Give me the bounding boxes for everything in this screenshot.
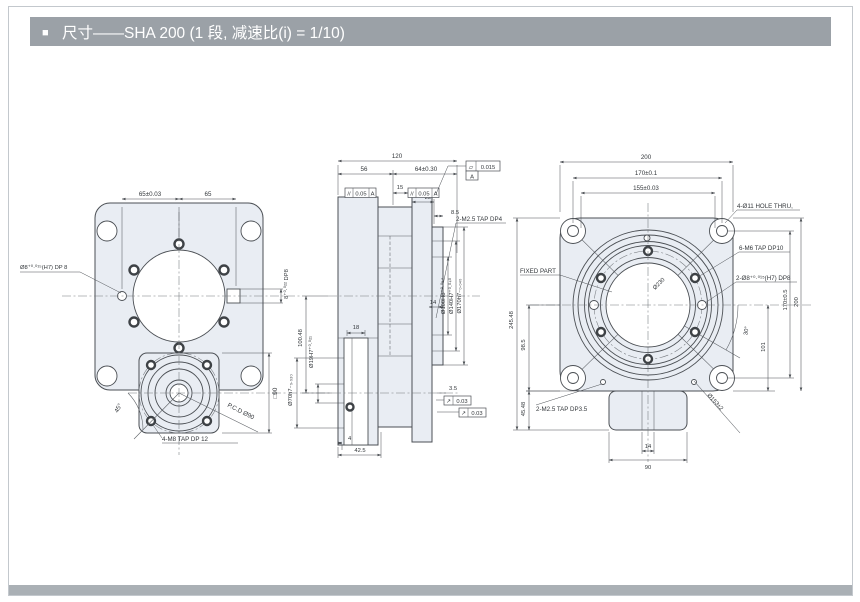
runout-2-value: 0.03 (471, 411, 482, 417)
dim-200-top: 200 (641, 154, 652, 161)
dia-70-label: Ø70h7₋₀.₀₃₀ (288, 374, 294, 406)
dim-18-label: 18 (353, 325, 359, 331)
dim-65-tol: 65±0.03 (139, 191, 162, 198)
runout-2-symbol: ↗ (461, 411, 466, 417)
side-body (338, 196, 443, 445)
parallel-left-symbol: // (347, 192, 351, 198)
square-90-label: □90 (272, 387, 279, 398)
holes-label: 4-Ø11 HOLE THRU, (737, 203, 793, 210)
fixed-part-label: FIXED PART (520, 268, 556, 275)
motor-taps-label: 4-M8 TAP DP 12 (162, 436, 209, 443)
dim-100-48-label: 100.48 (298, 329, 304, 347)
dia-100-label: Ø100H8⁺⁰·⁰⁵⁴ (440, 277, 447, 314)
dim-14-side: 14 (430, 300, 437, 306)
dim-15: 15 (397, 185, 403, 191)
side-taps-label: 2-M2.5 TAP DP4 (456, 216, 503, 223)
dim-65: 65 (205, 191, 212, 198)
runout-1-symbol: ↗ (446, 399, 451, 405)
key-slot-label: 8⁺⁰·⁰²² DP8 (283, 269, 290, 299)
dim-170-tol: 170±0.1 (635, 170, 658, 177)
pin-hole-label: Ø8⁺⁰·⁰¹⁵(H7) DP 8 (20, 264, 67, 271)
dim-101-label: 101 (761, 342, 767, 352)
dim-155: 155±0.03 (633, 185, 659, 192)
dim-90-label: 90 (645, 465, 651, 471)
dim-245-48-label: 245.48 (509, 311, 515, 329)
dim-98-5-label: 98.5 (521, 339, 527, 350)
parallel-right-datum: A (434, 192, 438, 198)
dim-14-back-label: 14 (645, 444, 652, 450)
motor-cavity (344, 338, 368, 445)
dim-64: 64±0.30 (415, 166, 438, 173)
dim-56: 56 (361, 166, 368, 173)
parallel-right-value: 0.05 (418, 192, 429, 198)
dia-140-label: Ø140H7⁺⁰·⁰⁴⁰ (448, 277, 455, 314)
dim-3-5-label: 3.5 (449, 386, 457, 392)
dim-45-48-label: 45.48 (521, 402, 527, 417)
flatness-symbol: ▱ (469, 165, 474, 171)
page-title: 尺寸——SHA 200 (1 段, 减速比(i) = 1/10) (62, 24, 345, 42)
section-bolt (347, 404, 354, 411)
taps-m2-5-label: 2-M2.5 TAP DP3.5 (536, 406, 588, 413)
taps-m6-label: 6-M6 TAP DP10 (739, 245, 784, 252)
dia-170-label: Ø170h7₋₀.₀₄₀ (457, 278, 463, 313)
bottom-bar (9, 585, 852, 595)
runout-1-value: 0.03 (456, 399, 467, 405)
header-bar: ■ 尺寸——SHA 200 (1 段, 减速比(i) = 1/10) (30, 17, 831, 46)
parallel-left-datum: A (371, 192, 375, 198)
dim-200v-label: 200 (794, 297, 800, 307)
flatness-datum: A (470, 175, 474, 181)
flatness-value: 0.015 (481, 165, 496, 171)
dim-170v-label: 170±0.5 (783, 290, 789, 311)
dimension-drawing-page: ■ 尺寸——SHA 200 (1 段, 减速比(i) = 1/10) (0, 0, 860, 602)
parallelism-frame-right: // 0.05 A (408, 188, 439, 198)
header-bullet-icon: ■ (42, 27, 49, 39)
parallel-right-symbol: // (410, 192, 414, 198)
dia-19-label: Ø19H7⁺⁰·⁰²¹ (308, 336, 315, 368)
parallel-left-value: 0.05 (355, 192, 366, 198)
pins-label: 2-Ø8⁺⁰·⁰¹⁵(H7) DP8 (736, 275, 791, 282)
parallelism-frame-left: // 0.05 A (345, 188, 376, 198)
dim-42-5-label: 42.5 (354, 448, 365, 454)
dim-120: 120 (392, 153, 403, 160)
